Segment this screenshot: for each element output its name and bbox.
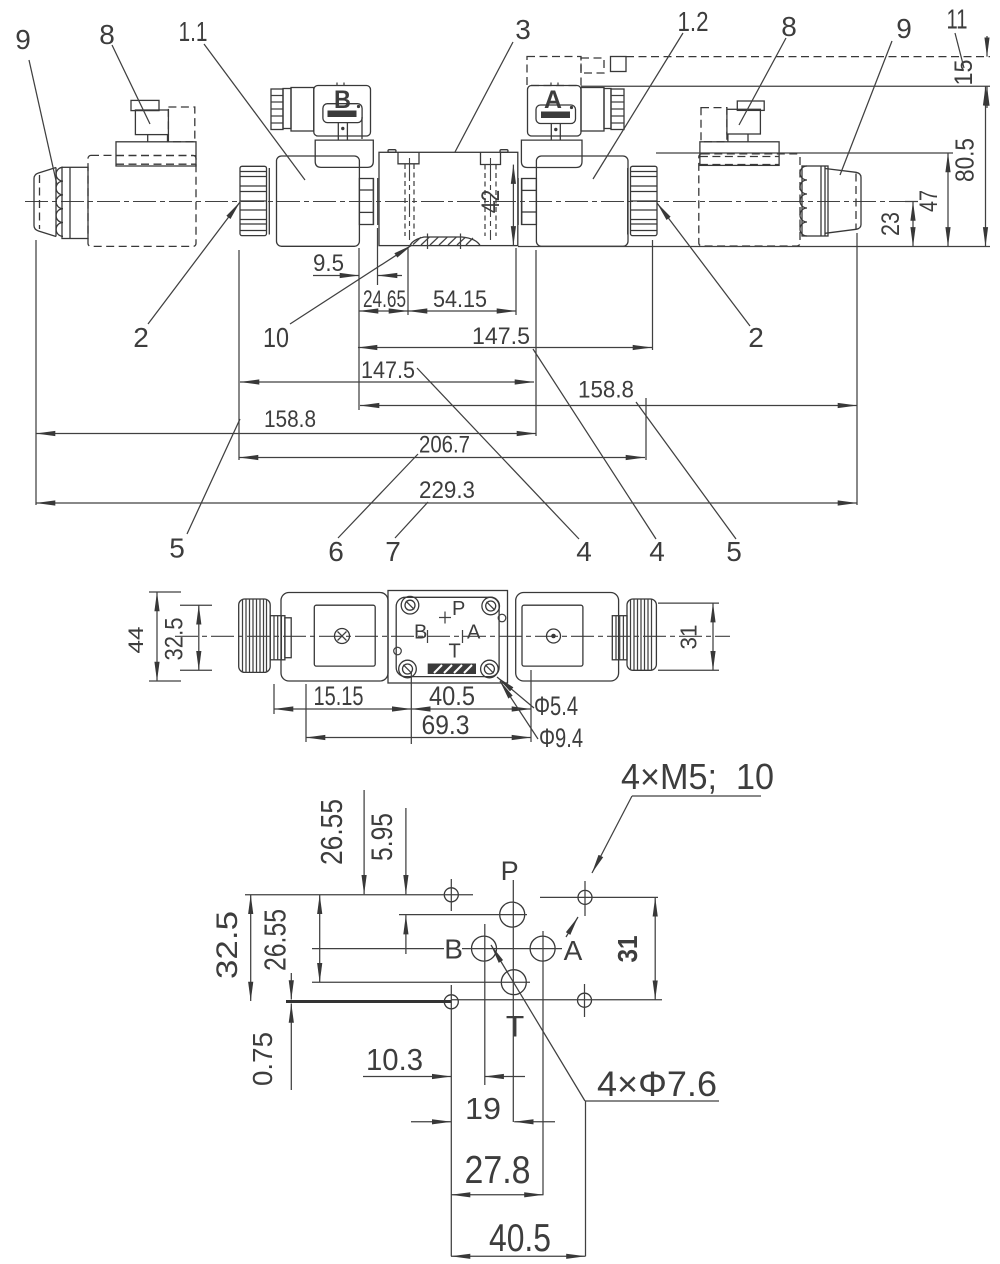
svg-text:26.55: 26.55 (314, 799, 349, 865)
svg-text:9.5: 9.5 (313, 250, 344, 277)
svg-text:9: 9 (15, 24, 31, 55)
svg-text:B: B (414, 622, 427, 644)
svg-text:31: 31 (612, 936, 643, 963)
svg-text:158.8: 158.8 (264, 406, 316, 433)
svg-text:80.5: 80.5 (950, 138, 980, 182)
svg-text:4: 4 (576, 536, 592, 567)
svg-text:42: 42 (477, 190, 505, 214)
svg-text:4×Φ7.6: 4×Φ7.6 (597, 1065, 717, 1104)
svg-text:27.8: 27.8 (465, 1149, 531, 1192)
svg-text:A: A (544, 86, 562, 114)
svg-text:5.95: 5.95 (366, 813, 399, 861)
svg-text:A: A (467, 622, 481, 644)
svg-text:2: 2 (133, 322, 149, 353)
svg-text:8: 8 (781, 11, 797, 42)
svg-text:26.55: 26.55 (258, 909, 293, 971)
svg-text:47: 47 (915, 190, 943, 212)
svg-text:3: 3 (515, 14, 531, 45)
svg-text:B: B (334, 86, 351, 114)
svg-text:P: P (452, 598, 465, 620)
svg-text:147.5: 147.5 (472, 323, 530, 350)
svg-text:Φ5.4: Φ5.4 (534, 691, 578, 721)
svg-text:54.15: 54.15 (433, 286, 487, 313)
svg-text:B: B (444, 934, 463, 965)
svg-text:40.5: 40.5 (489, 1217, 551, 1260)
svg-text:147.5: 147.5 (361, 357, 415, 384)
svg-text:4×M5; 10: 4×M5; 10 (621, 756, 774, 797)
svg-text:32.5: 32.5 (211, 911, 244, 979)
svg-text:23: 23 (877, 212, 905, 236)
svg-text:229.3: 229.3 (419, 477, 475, 504)
svg-text:5: 5 (726, 536, 742, 567)
svg-text:15: 15 (950, 60, 978, 86)
svg-text:1.1: 1.1 (179, 16, 208, 47)
svg-text:5: 5 (169, 533, 185, 564)
svg-text:10.3: 10.3 (366, 1042, 423, 1077)
svg-text:19: 19 (465, 1091, 501, 1126)
svg-text:Φ9.4: Φ9.4 (539, 723, 583, 753)
svg-text:40.5: 40.5 (429, 681, 475, 711)
svg-text:24.65: 24.65 (363, 286, 406, 313)
svg-text:69.3: 69.3 (422, 710, 470, 740)
svg-text:T: T (449, 641, 461, 663)
svg-text:44: 44 (125, 626, 148, 653)
svg-text:7: 7 (385, 536, 401, 567)
svg-text:158.8: 158.8 (578, 377, 634, 404)
svg-text:4: 4 (649, 536, 665, 567)
svg-text:0.75: 0.75 (247, 1032, 278, 1086)
svg-text:6: 6 (328, 536, 344, 567)
svg-text:11: 11 (947, 3, 968, 34)
svg-text:31: 31 (675, 625, 701, 650)
svg-text:9: 9 (896, 13, 912, 44)
svg-text:A: A (564, 935, 583, 966)
svg-text:1.2: 1.2 (678, 6, 709, 37)
svg-text:206.7: 206.7 (419, 432, 470, 459)
svg-text:T: T (506, 1011, 524, 1044)
svg-text:P: P (501, 856, 519, 886)
svg-text:32.5: 32.5 (161, 618, 189, 661)
svg-text:10: 10 (263, 322, 289, 353)
svg-text:15.15: 15.15 (314, 681, 364, 711)
svg-text:2: 2 (748, 322, 764, 353)
